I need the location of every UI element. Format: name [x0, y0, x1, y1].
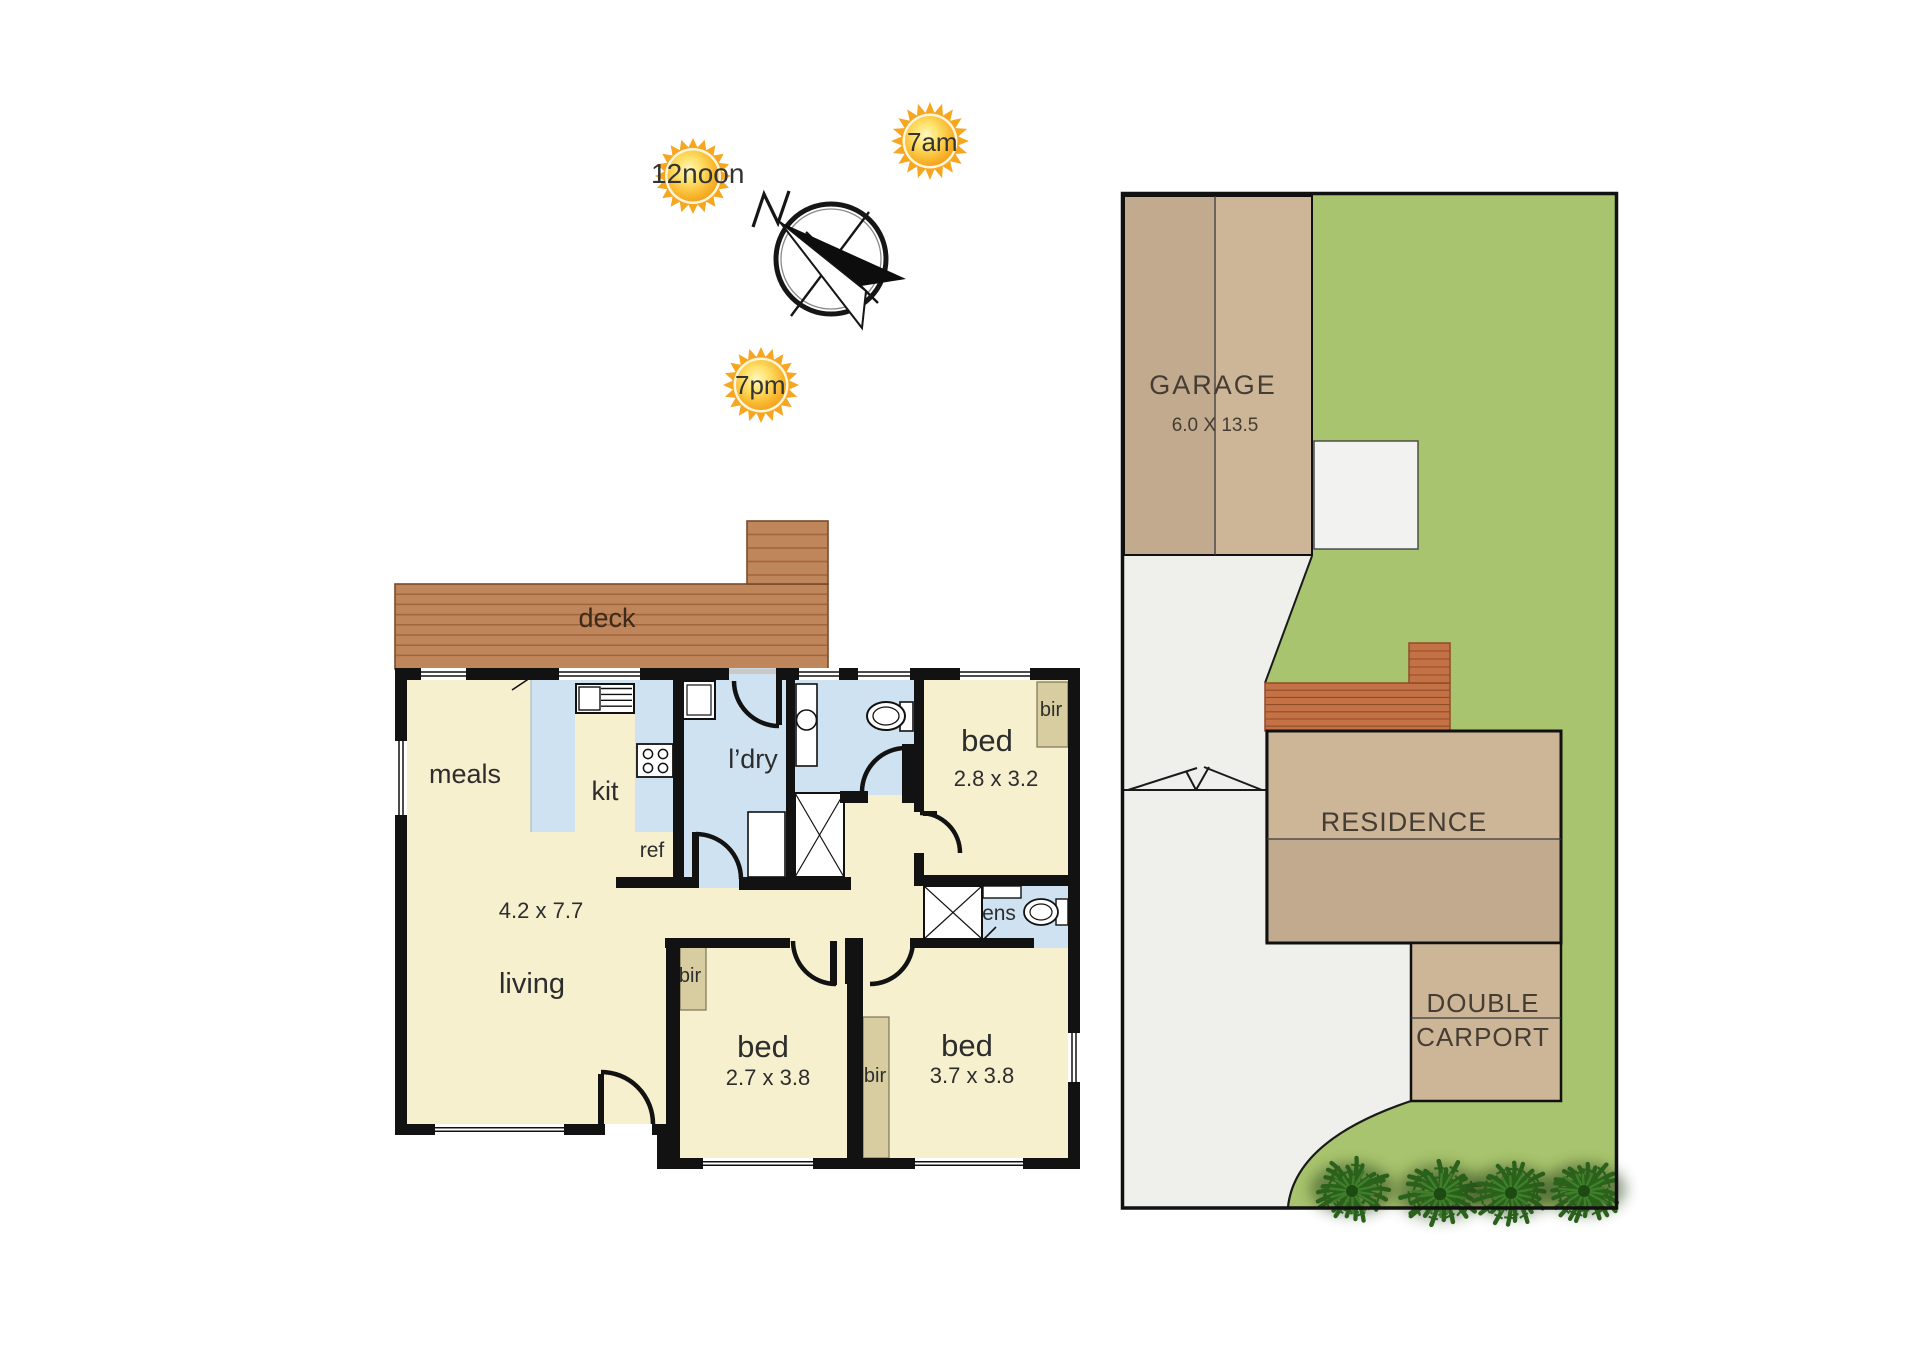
svg-text:bed: bed: [961, 723, 1013, 758]
svg-text:ref: ref: [640, 839, 665, 862]
svg-text:2.7 x 3.8: 2.7 x 3.8: [726, 1065, 810, 1090]
svg-text:bir: bir: [1040, 699, 1063, 721]
svg-text:DOUBLE: DOUBLE: [1427, 988, 1540, 1018]
svg-text:living: living: [499, 968, 565, 1000]
svg-text:4.2 x 7.7: 4.2 x 7.7: [499, 898, 583, 923]
svg-text:deck: deck: [578, 603, 636, 633]
svg-text:CARPORT: CARPORT: [1416, 1022, 1550, 1052]
svg-text:3.7 x 3.8: 3.7 x 3.8: [930, 1063, 1014, 1088]
svg-text:bed: bed: [737, 1029, 789, 1064]
svg-text:ens: ens: [982, 902, 1016, 925]
svg-text:bir: bir: [679, 965, 702, 987]
svg-text:7am: 7am: [907, 127, 958, 157]
svg-text:kit: kit: [592, 776, 619, 806]
svg-text:bir: bir: [864, 1065, 887, 1087]
svg-text:2.8 x 3.2: 2.8 x 3.2: [954, 766, 1038, 791]
svg-text:GARAGE: GARAGE: [1149, 370, 1277, 400]
svg-text:6.0 X 13.5: 6.0 X 13.5: [1172, 415, 1259, 436]
svg-text:l’dry: l’dry: [728, 744, 778, 774]
svg-text:12noon: 12noon: [651, 158, 744, 189]
svg-text:meals: meals: [429, 759, 501, 789]
svg-text:RESIDENCE: RESIDENCE: [1321, 807, 1488, 837]
svg-text:bed: bed: [941, 1028, 993, 1063]
svg-text:7pm: 7pm: [735, 370, 786, 400]
